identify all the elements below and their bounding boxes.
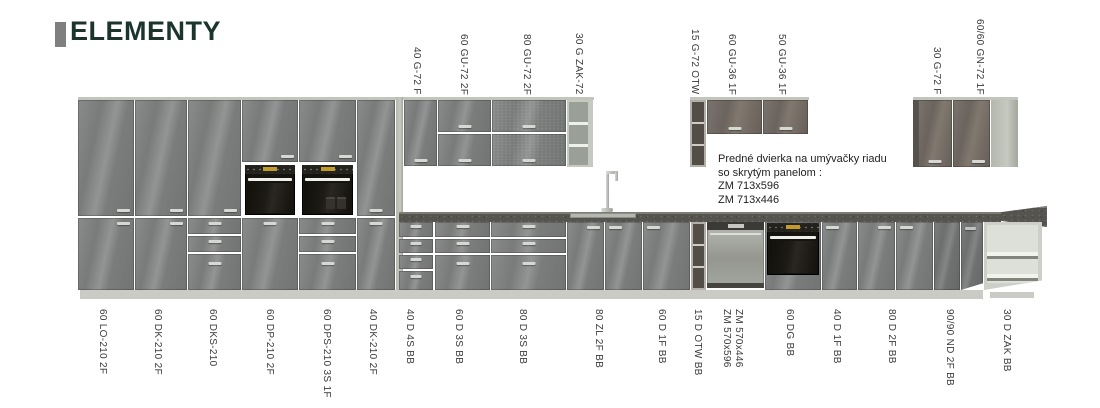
faucet-riser xyxy=(606,174,609,212)
cabinet-label: 15 G-72 OTW xyxy=(688,29,700,95)
base-90-90-ND-front-panel xyxy=(934,222,960,290)
faucet-base xyxy=(601,208,613,212)
cabinet-label: 60 D 3S BB xyxy=(452,309,464,364)
cabinet-label: 50 GU-36 1F xyxy=(775,34,787,95)
cabinet-label: 15 D OTW BB xyxy=(691,309,703,376)
cabinet-60-DP-210-2F-lower-door xyxy=(242,218,298,290)
wall-cabinet-60-GU-72-lower-flap xyxy=(438,134,491,166)
cabinet-label: 60 DPS-210 3S 1F xyxy=(320,309,332,398)
cabinet-60-DPS-210-drawer-2 xyxy=(299,236,356,252)
cabinet-60-DKS-210-upper-door xyxy=(188,100,241,216)
oven-3-handle xyxy=(770,236,816,239)
oven-2-handle xyxy=(305,178,350,181)
cabinet-60-DKS-210-drawer-1 xyxy=(188,218,241,234)
cabinet-60-DK-210-2F-lower-door xyxy=(135,218,187,290)
pot-reflection xyxy=(337,197,346,209)
base-60-D-3S-drawer-1 xyxy=(435,222,490,237)
cabinet-label: 60 LO-210 2F xyxy=(96,309,108,374)
wall-cabinet-80-GU-72-lower-flap xyxy=(492,134,566,166)
cabinet-label: 60 DP-210 2F xyxy=(263,309,275,375)
base-90-90-ND-angled-door xyxy=(961,222,983,290)
base-40-D-4S-drawer-4 xyxy=(399,271,433,290)
wall-cabinet-60-GU-36-1F xyxy=(707,100,762,134)
oven-1-control-strip xyxy=(245,165,295,174)
oven-1-glass xyxy=(247,183,293,213)
sink xyxy=(570,213,636,218)
cabinet-60-DK-210-2F-upper-door xyxy=(135,100,187,216)
cabinet-label: 60 DK-210 2F xyxy=(151,309,163,375)
cabinet-label: 60 GU-36 1F xyxy=(725,34,737,95)
oven-1-handle xyxy=(248,178,292,181)
end-unit-plinth xyxy=(990,292,1034,298)
dishwasher-base-gap xyxy=(707,283,764,288)
kitchen-elements-catalog: ELEMENTY xyxy=(0,0,1100,408)
dishwasher-handle xyxy=(710,233,761,235)
base-80-D-3S-drawer-2 xyxy=(491,239,566,253)
cabinet-60-DPS-210-drawer-1 xyxy=(299,218,356,234)
cabinet-label: 60 DKS-210 xyxy=(206,309,218,366)
title-accent-bar xyxy=(55,22,66,47)
wall-open-shelf-30-G-ZAK-72 xyxy=(567,100,593,167)
cabinet-40-DK-210-2F-upper-door xyxy=(357,100,395,216)
base-40-D-4S-drawer-3 xyxy=(399,255,433,269)
base-80-ZL-right-door xyxy=(605,222,642,290)
oven-3-glass xyxy=(769,241,817,273)
pot-reflection xyxy=(326,197,335,209)
oven-3-control-strip xyxy=(767,223,819,232)
wall-open-shelf-15-G-72-OTW xyxy=(690,100,706,167)
cabinet-label: 80 GU-72 2F xyxy=(520,34,532,95)
cabinet-60-LO-210-2F-lower-door xyxy=(78,218,134,290)
base-40-D-4S-drawer-1 xyxy=(399,222,433,237)
oven-3-display xyxy=(786,225,800,229)
wall-cabinet-60-60-GN-72-1F-door xyxy=(953,100,990,167)
wall-cabinet-40-G-72-F xyxy=(404,100,437,166)
wall-cabinet-30-G-72-F xyxy=(918,100,952,167)
plinth xyxy=(80,290,983,299)
dishwasher-front xyxy=(707,222,764,288)
oven-2-display xyxy=(321,167,335,171)
cabinet-label: 30 D ZAK BB xyxy=(1000,309,1012,372)
cabinet-60-DKS-210-drawer-2 xyxy=(188,236,241,252)
wall-cabinet-60-GU-72-upper-flap xyxy=(438,100,491,132)
cabinet-40-DK-210-2F-lower-door xyxy=(357,218,395,290)
corner-wall-return-panel xyxy=(991,100,1018,167)
faucet-spout-tip xyxy=(615,171,618,181)
base-80-D-3S-drawer-1 xyxy=(491,222,566,237)
cabinet-label: 60 DG BB xyxy=(783,309,795,356)
dishwasher-control-strip xyxy=(707,222,764,230)
oven-2-control-strip xyxy=(302,165,353,174)
cabinet-label: 40 DK-210 2F xyxy=(366,309,378,375)
cabinet-label: 60 D 1F BB xyxy=(655,309,667,364)
base-60-D-3S-drawer-3 xyxy=(435,255,490,290)
cabinet-label: 40 D 4S BB xyxy=(403,309,415,364)
page-title: ELEMENTY xyxy=(70,16,221,47)
cabinet-label: 80 D 3S BB xyxy=(516,309,528,364)
base-80-D-3S-drawer-3 xyxy=(491,255,566,290)
cabinet-label: 40 G-72 F xyxy=(410,47,422,95)
base-40-D-4S-drawer-2 xyxy=(399,239,433,253)
cabinet-60-DPS-210-drawer-3 xyxy=(299,254,356,290)
base-open-shelf-15-D-OTW xyxy=(691,222,706,290)
cabinet-60-DPS-210-upper-door xyxy=(299,100,356,162)
base-80-D-2F-right-door xyxy=(896,222,933,290)
oven-2-glass xyxy=(304,183,351,213)
dishwasher-control-panel xyxy=(728,224,744,228)
cabinet-label: 80 D 2F BB xyxy=(885,309,897,364)
cabinet-label: ZM 570x596 ZM 570x446 xyxy=(720,309,744,368)
cabinet-label: 80 ZL 2F BB xyxy=(592,309,604,368)
cabinet-label: 30 G-72 F xyxy=(930,47,942,95)
wall-cabinet-50-GU-36-1F xyxy=(763,100,808,134)
built-in-oven-1 xyxy=(245,165,295,215)
oven-1-display xyxy=(263,167,277,171)
base-80-D-2F-left-door xyxy=(858,222,895,290)
dishwasher-front-note: Predné dvierka na umývačky riadu so skry… xyxy=(718,153,887,207)
base-open-end-shelf-30-D-ZAK xyxy=(984,222,1042,290)
cabinet-label: 60/60 GN-72 1F xyxy=(973,19,985,95)
built-in-oven-2 xyxy=(302,165,353,215)
base-40-D-1F-door xyxy=(822,222,857,290)
cabinet-label: 30 G ZAK-72 xyxy=(572,33,584,95)
base-60-D-1F-door xyxy=(643,222,690,290)
cabinet-60-DP-210-2F-upper-door xyxy=(242,100,298,162)
cabinet-60-LO-210-2F-upper-door xyxy=(78,100,134,216)
countertop xyxy=(399,212,1001,222)
cabinet-label: 40 D 1F BB xyxy=(830,309,842,364)
base-60-D-3S-drawer-2 xyxy=(435,239,490,253)
built-in-oven-3 xyxy=(767,223,819,275)
wall-cabinet-80-GU-72-upper-flap xyxy=(492,100,566,132)
cabinet-label: 90/90 ND 2F BB xyxy=(943,309,955,386)
cabinet-60-DKS-210-drawer-3 xyxy=(188,254,241,290)
cabinet-label: 60 GU-72 2F xyxy=(457,34,469,95)
base-80-ZL-left-door xyxy=(567,222,604,290)
